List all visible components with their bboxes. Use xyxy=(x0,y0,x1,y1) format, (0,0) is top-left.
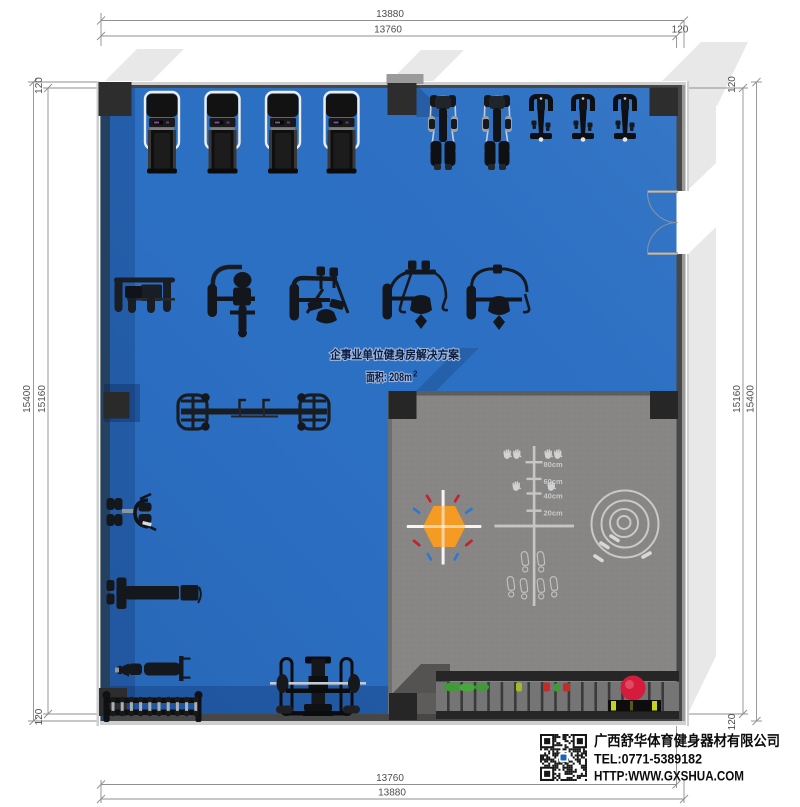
svg-text:15400: 15400 xyxy=(746,385,757,413)
svg-text:13880: 13880 xyxy=(376,9,404,20)
svg-text:13760: 13760 xyxy=(374,25,402,36)
svg-text:120: 120 xyxy=(34,77,45,94)
svg-text:HTTP:WWW.GXSHUA.COM: HTTP:WWW.GXSHUA.COM xyxy=(594,768,744,784)
svg-text:120: 120 xyxy=(34,708,45,725)
svg-text:120: 120 xyxy=(727,76,738,93)
svg-text:面积: 208m: 面积: 208m xyxy=(366,370,412,384)
svg-text:TEL:0771-5389182: TEL:0771-5389182 xyxy=(594,751,702,767)
svg-text:80cm: 80cm xyxy=(544,460,564,469)
svg-text:120: 120 xyxy=(672,25,689,36)
svg-text:20cm: 20cm xyxy=(544,509,564,518)
svg-text:广西舒华体育健身器材有限公司: 广西舒华体育健身器材有限公司 xyxy=(594,732,780,750)
svg-text:13880: 13880 xyxy=(378,788,406,799)
svg-text:2: 2 xyxy=(413,370,418,379)
svg-text:40cm: 40cm xyxy=(544,492,564,501)
svg-text:60cm: 60cm xyxy=(544,477,564,486)
svg-text:15160: 15160 xyxy=(732,385,743,413)
svg-text:13760: 13760 xyxy=(376,773,404,784)
svg-text:企事业单位健身房解决方案: 企事业单位健身房解决方案 xyxy=(329,348,459,362)
svg-text:15400: 15400 xyxy=(22,385,33,413)
svg-text:15160: 15160 xyxy=(37,385,48,413)
svg-text:120: 120 xyxy=(727,713,738,730)
